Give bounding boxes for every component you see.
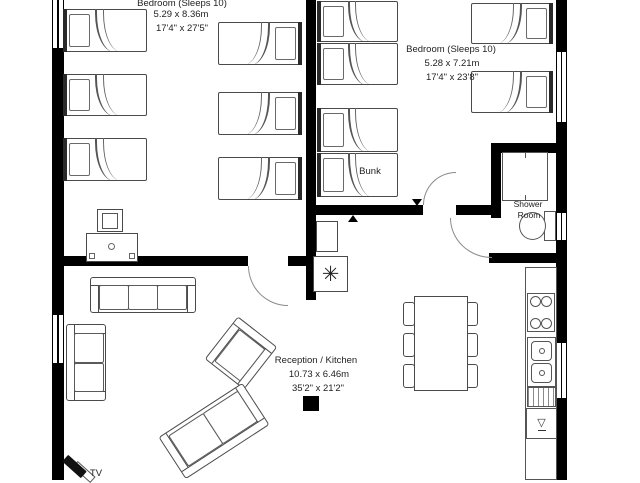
- bunk-label: Bunk: [359, 166, 381, 177]
- bed-pillow: [323, 6, 344, 37]
- desk-chair: [97, 209, 123, 232]
- desk-leg-icon: [129, 253, 135, 259]
- dishwasher-glass-base-icon: [538, 430, 546, 431]
- door-arc-bedroom-right: [423, 172, 456, 205]
- window-left-lower: [52, 315, 64, 363]
- bed-headboard: [317, 108, 321, 152]
- hob-burner-icon: [530, 296, 541, 307]
- bed-headboard: [63, 138, 67, 181]
- hob-burner-icon: [530, 318, 541, 329]
- single-bed: [63, 9, 147, 52]
- wall-bedroom-right-bottom-left: [316, 205, 423, 215]
- hob: [527, 293, 555, 332]
- bed-pillow: [275, 27, 296, 60]
- wall-right-1: [556, 0, 567, 52]
- desk: [86, 233, 138, 262]
- armchair: [205, 316, 278, 389]
- reception-kitchen-title: Reception / Kitchen: [275, 355, 357, 366]
- sink-drain-icon: [539, 370, 545, 376]
- door-marker-icon: [348, 215, 358, 222]
- sofa-two-seat-angled: [158, 383, 269, 479]
- wall-shower-bottom: [489, 253, 567, 263]
- single-bed: [218, 157, 302, 200]
- floor-plan: ✳: [0, 0, 640, 480]
- bunk-bed-labeled: [317, 153, 398, 197]
- sofa-armrest: [91, 285, 99, 312]
- bed-headboard: [298, 157, 302, 200]
- desk-lamp-icon: [108, 243, 115, 250]
- bed-pillow: [323, 48, 344, 80]
- bunk-bed: [317, 43, 398, 85]
- bedroom-right-dim-imperial: 17'4" x 23'8": [426, 72, 478, 83]
- bed-headboard: [298, 92, 302, 135]
- window-right-kitchen: [556, 343, 567, 398]
- wall-left-lower: [52, 363, 64, 480]
- dishwasher-glass-icon: ▽: [537, 417, 545, 428]
- desk-leg-icon: [89, 253, 95, 259]
- single-bed: [218, 22, 302, 65]
- bed-headboard: [549, 71, 553, 113]
- bed-pillow: [275, 97, 296, 130]
- sofa-three-seat: [90, 277, 196, 313]
- hob-burner-icon: [541, 318, 552, 329]
- chair-seat: [102, 213, 118, 229]
- bed-pillow: [69, 14, 90, 47]
- door-arc-bedroom-left: [248, 266, 288, 306]
- window-right-shower: [556, 213, 567, 240]
- armchair-wrapper: [205, 316, 278, 389]
- bedroom-left-dim-imperial: 17'4" x 27'5": [156, 23, 208, 34]
- bedroom-left-title: Bedroom (Sleeps 10): [137, 0, 227, 9]
- bed-pillow: [275, 162, 296, 195]
- shower-stall: [502, 152, 548, 201]
- door-arc-shower-hall: [450, 218, 492, 258]
- boiler-unit: ✳: [313, 256, 348, 292]
- hob-burner-icon: [541, 296, 552, 307]
- sofa-armrest: [74, 391, 105, 400]
- dining-table: [414, 296, 468, 391]
- wall-right-2: [556, 122, 567, 213]
- cupboard: [316, 221, 338, 252]
- shower-room-label-line2: Room: [518, 210, 541, 221]
- single-bed: [218, 92, 302, 135]
- wall-reception-top-stub: [288, 256, 306, 266]
- bed-pillow: [526, 76, 547, 108]
- sofa-cushions: [99, 285, 187, 310]
- sofa-two-seat-wrapper: [158, 383, 269, 479]
- bedroom-right-title: Bedroom (Sleeps 10): [406, 44, 496, 55]
- window-right-bedroom: [556, 52, 567, 122]
- tv-label: TV: [90, 468, 102, 479]
- sofa-two-seat-vertical: [66, 324, 106, 401]
- door-marker-icon: [412, 199, 422, 206]
- bed-headboard: [317, 153, 321, 197]
- bed-headboard: [317, 43, 321, 85]
- bed-pillow: [526, 8, 547, 39]
- structural-column: [303, 396, 319, 411]
- wall-shower-left: [491, 153, 501, 218]
- bed-pillow: [323, 158, 344, 192]
- bed-pillow: [323, 113, 344, 147]
- sink-drain-icon: [539, 348, 545, 354]
- wall-middle-vertical: [306, 0, 316, 300]
- boiler-fan-icon: ✳: [314, 257, 347, 291]
- single-bed: [471, 3, 553, 44]
- sink-bowl: [531, 341, 552, 361]
- bed-headboard: [317, 1, 321, 42]
- dishwasher: ▽: [526, 408, 557, 439]
- bed-pillow: [69, 79, 90, 111]
- wall-right-4: [556, 398, 567, 480]
- bedroom-right-dim-metric: 5.28 x 7.21m: [425, 58, 480, 69]
- sink-bowl: [531, 363, 552, 383]
- reception-kitchen-dim-metric: 10.73 x 6.46m: [289, 369, 349, 380]
- bed-headboard: [63, 9, 67, 52]
- reception-kitchen-dim-imperial: 35'2" x 21'2": [292, 383, 344, 394]
- sink-drainer: [527, 387, 556, 407]
- shower-room-label-line1: Shower: [514, 199, 543, 210]
- single-bed: [63, 74, 147, 116]
- bed-headboard: [298, 22, 302, 65]
- sofa-armrest: [187, 285, 195, 312]
- bunk-bed: [317, 108, 398, 152]
- single-bed: [471, 71, 553, 113]
- bedroom-left-dim-metric: 5.29 x 8.36m: [154, 9, 209, 20]
- bed-headboard: [63, 74, 67, 116]
- bed-pillow: [69, 143, 90, 176]
- sink-unit: [527, 337, 556, 387]
- kitchen-counter: ▽: [525, 267, 557, 480]
- bed-headboard: [549, 3, 553, 44]
- single-bed: [63, 138, 147, 181]
- sofa-cushions: [74, 333, 103, 392]
- bunk-bed: [317, 1, 398, 42]
